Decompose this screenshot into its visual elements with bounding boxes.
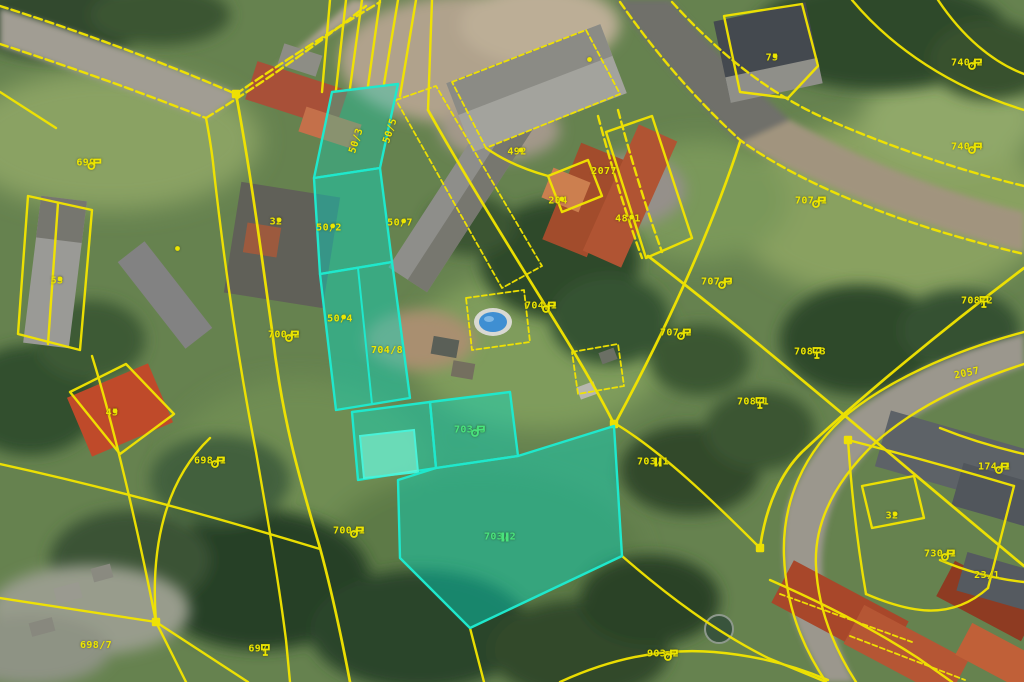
swimming-pool — [474, 308, 512, 336]
highlighted-parcel-703-3[interactable] — [430, 392, 518, 468]
highlighted-parcel-50-2[interactable] — [314, 168, 392, 274]
map-graphics — [0, 0, 1024, 682]
highlighted-parcel-inner-bright[interactable] — [360, 430, 418, 478]
cadastral-map-canvas[interactable]: 699533245698/1700/2700/1697698/750/250/7… — [0, 0, 1024, 682]
